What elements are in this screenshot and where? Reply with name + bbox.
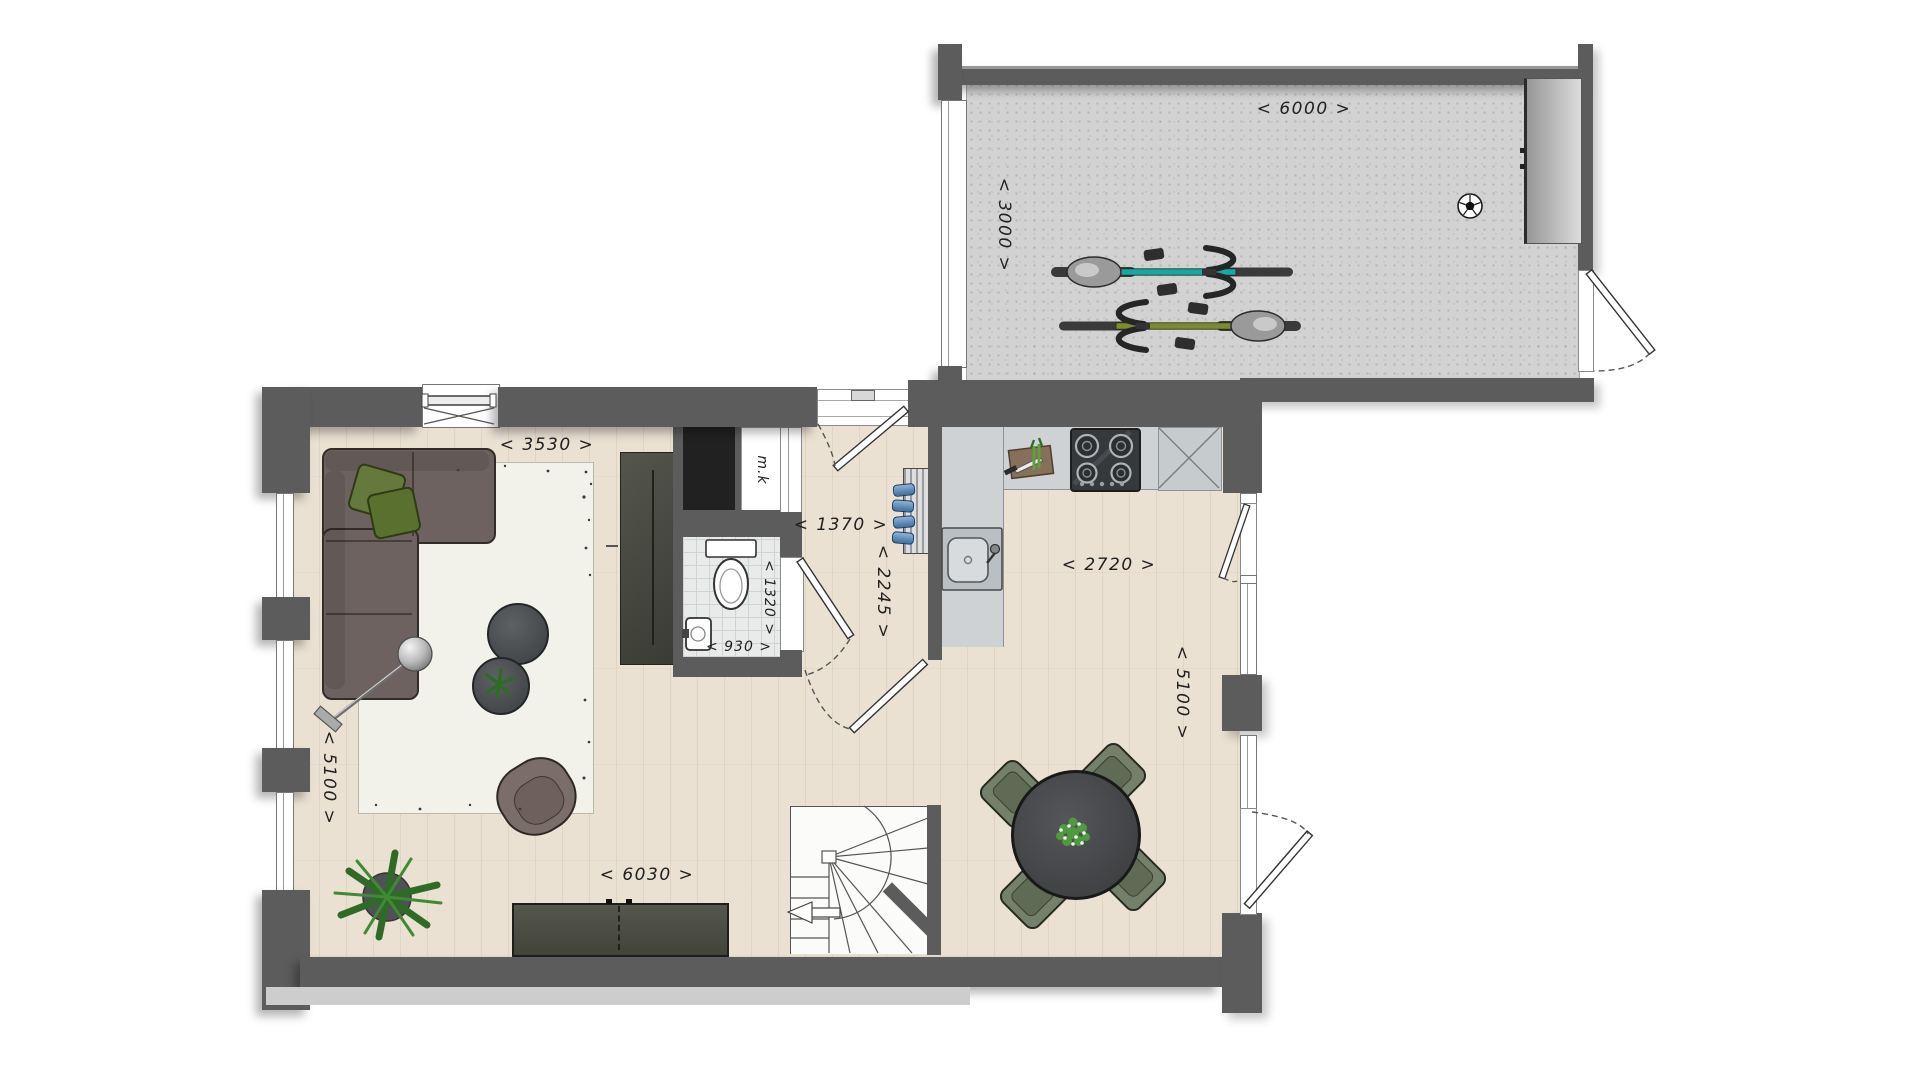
garden-door-opening: [1240, 808, 1257, 915]
dim-kitchen-width: < 2720 >: [1062, 555, 1157, 575]
coffee-table-small: [472, 657, 530, 715]
garage-wall-bottom: [1240, 378, 1594, 402]
storage-closet: [683, 427, 735, 510]
left-wall-pier-1: [262, 597, 310, 640]
floor-plan: < 6000 > < 3000 > < 3530 > < 5100 > < 60…: [0, 0, 1920, 1080]
front-door-sill: [851, 390, 875, 401]
right-wall-pier: [1222, 675, 1262, 731]
wall-top-left: [300, 387, 422, 427]
garage-pilaster-top-left: [938, 44, 962, 100]
garage-storage-cabinet: [1524, 78, 1582, 244]
staircase: [790, 806, 929, 954]
sideboard-split-line: [618, 906, 620, 950]
toilet-block-wall-left: [673, 427, 683, 677]
window-right-1: [1240, 583, 1257, 675]
coat-blue: [892, 531, 915, 545]
wall-top-mid: [498, 387, 817, 427]
dim-toilet-width: < 930 >: [706, 639, 772, 655]
sofa-backrest: [325, 451, 489, 471]
window-left-3: [276, 792, 294, 892]
dim-toilet-depth: < 1320 >: [761, 560, 777, 636]
dim-kitchen-depth: < 5100 >: [1172, 646, 1192, 741]
sofa-seam: [326, 613, 412, 615]
wall-top-kitchen: [908, 380, 1262, 427]
exterior-sill: [266, 987, 970, 1005]
label-meter-cupboard: m.k: [754, 455, 770, 484]
dim-hall-width: < 1370 >: [794, 515, 889, 535]
sofa-pillow: [366, 486, 423, 541]
left-wall-pier-2: [262, 748, 310, 792]
window-left-1: [276, 493, 294, 599]
garage-door-opening: [1578, 270, 1594, 372]
sofa-backrest: [325, 471, 345, 689]
kitchen-tall-unit: [1158, 427, 1222, 491]
dim-living-depth: < 5100 >: [319, 731, 339, 826]
cabinet-handle: [1520, 164, 1525, 169]
sideboard-handle: [626, 899, 632, 904]
sideboard-handle: [606, 899, 612, 904]
garage-wall-top: [955, 66, 1592, 85]
garage-door: [1586, 270, 1655, 371]
wall-bottom: [300, 957, 1222, 987]
garage-window-left: [941, 100, 967, 368]
window-right-2: [1240, 735, 1257, 810]
dining-table: [1011, 770, 1141, 900]
cabinet-handle: [1520, 148, 1525, 153]
wardrobe: [620, 452, 679, 665]
dim-hall-depth: < 2245 >: [873, 545, 893, 640]
toilet-block-wall-right-low: [780, 650, 802, 677]
armchair-cushion: [507, 769, 571, 832]
tv-sideboard: [512, 903, 729, 957]
corner-top-left: [262, 387, 310, 493]
wardrobe-handle-line: [652, 470, 654, 645]
coat-blue: [892, 499, 915, 513]
kitchen-counter-left-run: [942, 427, 1004, 647]
garage-floor: [966, 80, 1580, 382]
hall-kitchen-wall: [928, 387, 942, 660]
dim-living-length: < 6030 >: [600, 865, 695, 885]
cooktop: [1070, 428, 1141, 492]
corner-bottom-right: [1222, 913, 1262, 1013]
dim-garage-depth: < 3000 >: [994, 178, 1014, 273]
window-left-2: [276, 640, 294, 750]
pillar-top-right: [1223, 380, 1262, 493]
window-top-living: [422, 384, 500, 428]
dim-living-width: < 3530 >: [500, 435, 595, 455]
stairwell-wall: [927, 805, 941, 955]
toilet-block-wall-mid: [683, 510, 780, 537]
sofa-seam: [326, 540, 412, 542]
dim-garage-width: < 6000 >: [1257, 99, 1352, 119]
wardrobe-door-dash: [606, 545, 618, 547]
kitchen-side-door-opening: [1240, 503, 1257, 577]
coat-blue: [893, 515, 916, 529]
meter-cupboard-door: [780, 427, 802, 514]
coffee-table-large: [487, 603, 549, 665]
toilet-door-opening: [780, 557, 804, 652]
coat-blue: [892, 483, 915, 497]
